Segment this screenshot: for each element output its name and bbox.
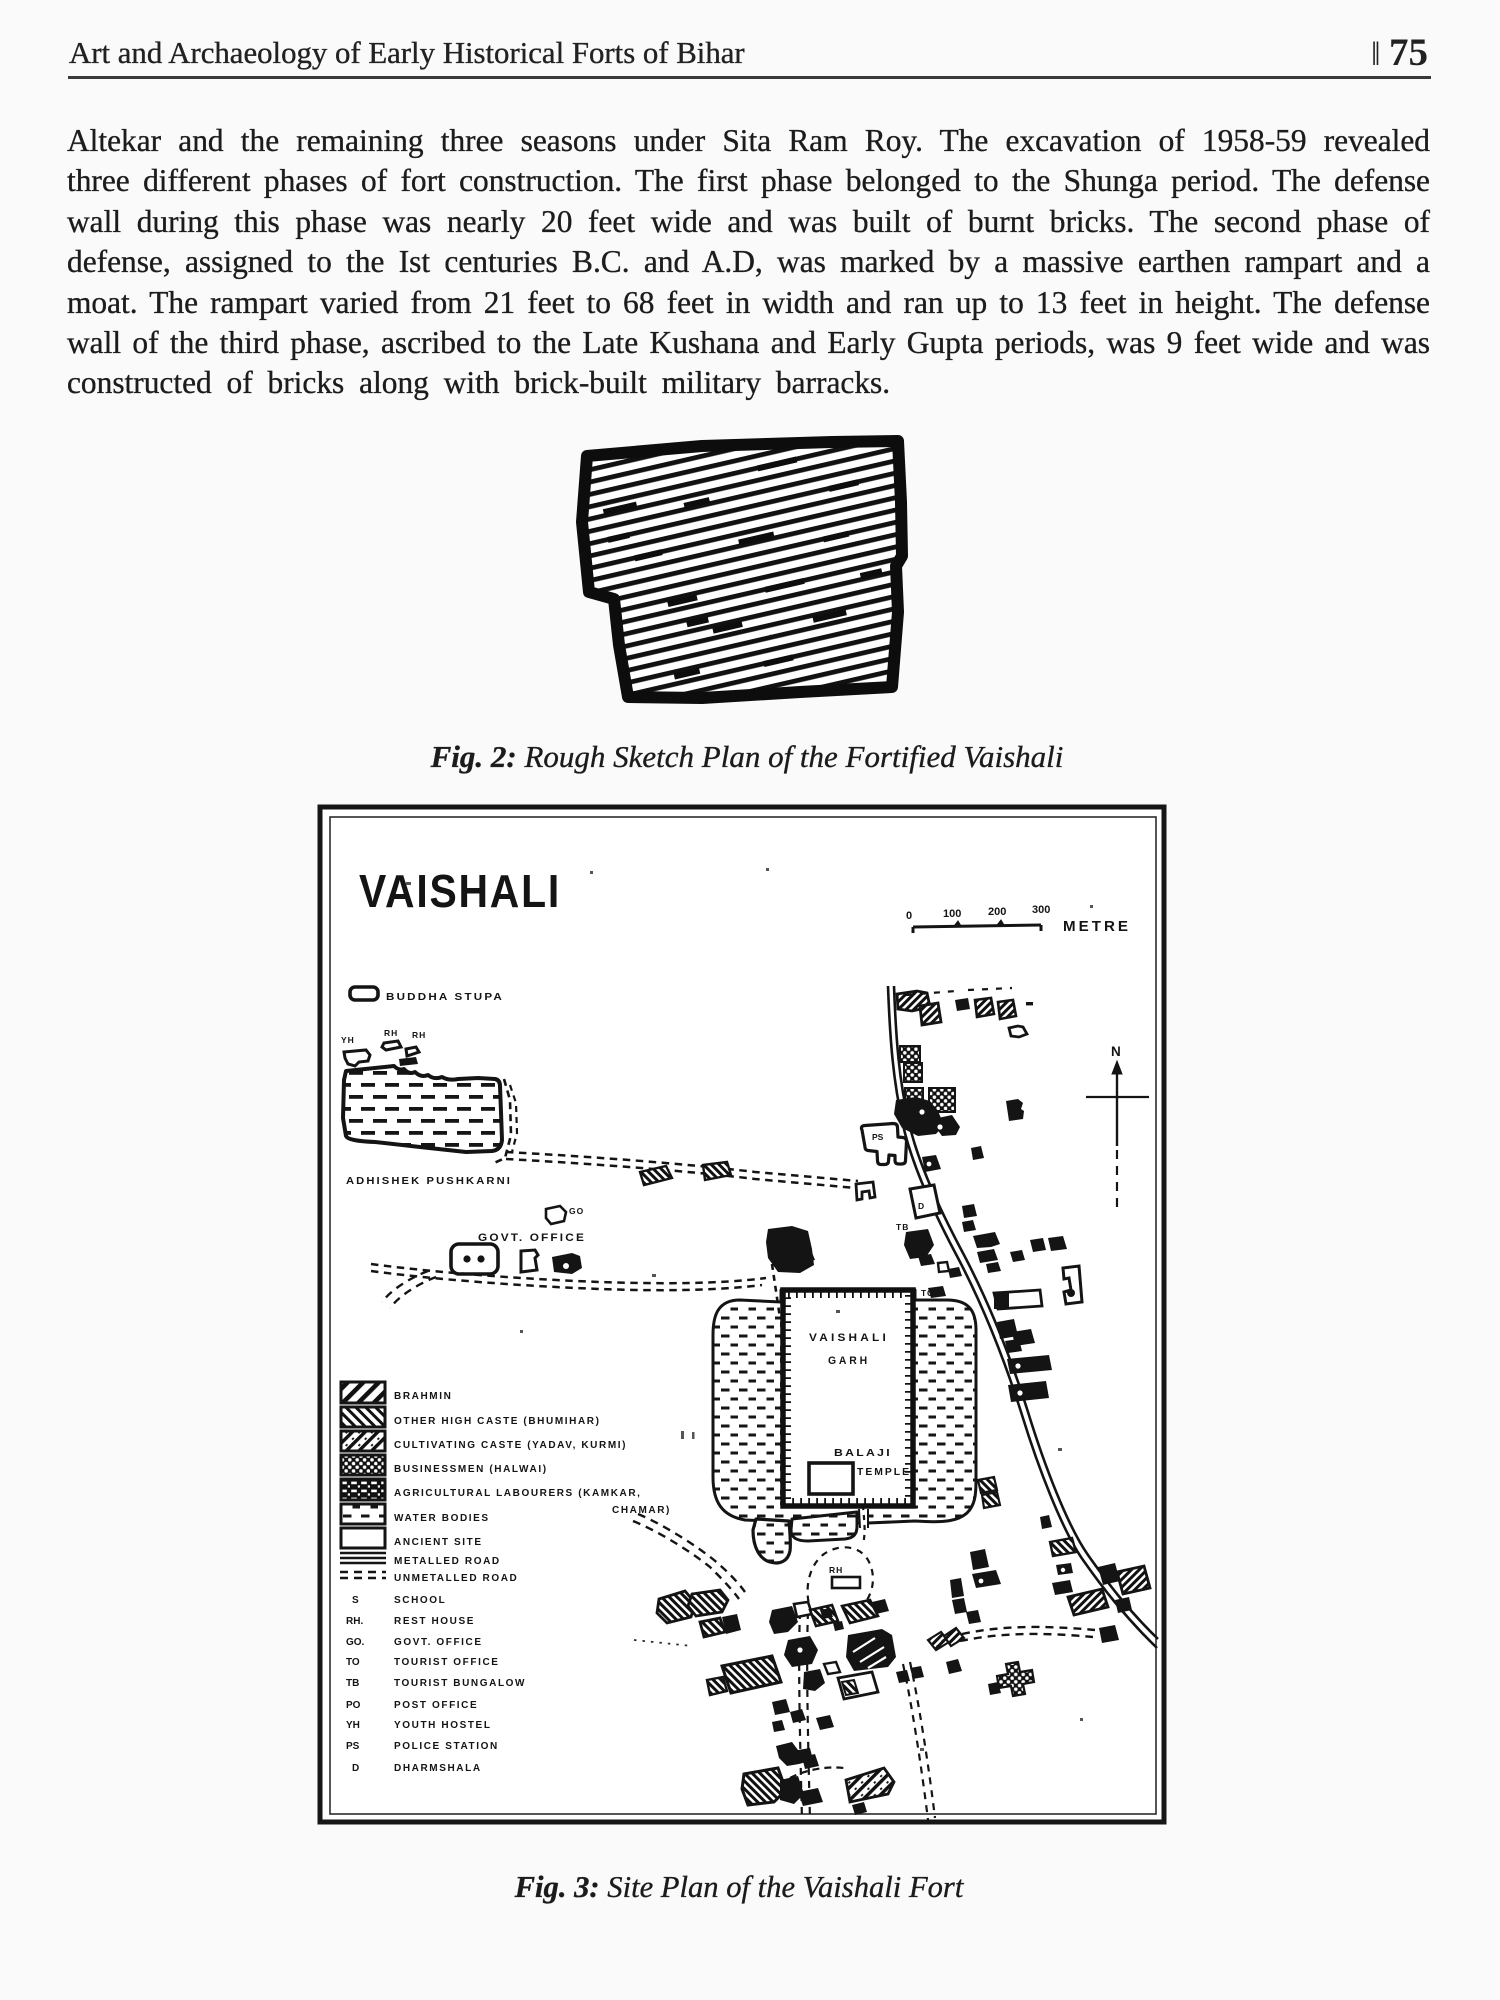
- svg-text:BALAJI: BALAJI: [834, 1447, 892, 1459]
- svg-text:POLICE STATION: POLICE STATION: [394, 1741, 499, 1752]
- svg-text:RH.: RH.: [346, 1616, 363, 1627]
- svg-text:300: 300: [1032, 904, 1050, 916]
- svg-text:AGRICULTURAL LABOURERS (KAMKAR: AGRICULTURAL LABOURERS (KAMKAR,: [394, 1488, 642, 1499]
- svg-text:GOVT. OFFICE: GOVT. OFFICE: [394, 1637, 483, 1648]
- svg-text:YH: YH: [346, 1720, 360, 1731]
- svg-text:ADHISHEK PUSHKARNI: ADHISHEK PUSHKARNI: [346, 1175, 512, 1187]
- svg-text:ANCIENT SITE: ANCIENT SITE: [394, 1537, 483, 1548]
- svg-text:PS: PS: [872, 1132, 884, 1142]
- svg-text:BUDDHA STUPA: BUDDHA STUPA: [386, 991, 504, 1003]
- svg-text:UNMETALLED ROAD: UNMETALLED ROAD: [394, 1573, 518, 1584]
- svg-text:YOUTH HOSTEL: YOUTH HOSTEL: [394, 1720, 492, 1731]
- svg-text:TB: TB: [896, 1222, 909, 1232]
- svg-text:PS: PS: [346, 1741, 360, 1752]
- svg-text:D: D: [918, 1201, 924, 1211]
- svg-text:GOVT. OFFICE: GOVT. OFFICE: [478, 1232, 586, 1244]
- svg-text:CHAMAR): CHAMAR): [612, 1505, 671, 1516]
- svg-text:BUSINESSMEN (HALWAI): BUSINESSMEN (HALWAI): [394, 1464, 548, 1475]
- svg-text:RH: RH: [829, 1565, 843, 1575]
- svg-text:CULTIVATING CASTE (YADAV, KURM: CULTIVATING CASTE (YADAV, KURMI): [394, 1440, 627, 1451]
- svg-text:TOURIST OFFICE: TOURIST OFFICE: [394, 1657, 500, 1668]
- svg-text:N: N: [1111, 1044, 1121, 1059]
- svg-text:DHARMSHALA: DHARMSHALA: [394, 1763, 482, 1774]
- svg-text:D: D: [352, 1763, 359, 1774]
- svg-text:REST HOUSE: REST HOUSE: [394, 1616, 475, 1627]
- svg-text:S: S: [352, 1595, 359, 1606]
- svg-text:TO: TO: [346, 1657, 360, 1668]
- svg-text:VAISHALI: VAISHALI: [359, 865, 561, 917]
- svg-text:TB: TB: [346, 1678, 359, 1689]
- svg-text:TOURIST BUNGALOW: TOURIST BUNGALOW: [394, 1678, 526, 1689]
- svg-text:RH: RH: [412, 1030, 426, 1040]
- svg-text:0: 0: [906, 910, 912, 922]
- svg-text:TEMPLE: TEMPLE: [857, 1466, 911, 1478]
- svg-text:VAISHALI: VAISHALI: [809, 1332, 889, 1344]
- svg-text:PO: PO: [346, 1700, 361, 1711]
- svg-text:100: 100: [943, 908, 961, 920]
- svg-text:OTHER HIGH CASTE (BHUMIHAR): OTHER HIGH CASTE (BHUMIHAR): [394, 1416, 601, 1427]
- svg-text:WATER BODIES: WATER BODIES: [394, 1513, 490, 1524]
- svg-text:GO: GO: [569, 1206, 584, 1216]
- svg-text:METRE: METRE: [1063, 918, 1131, 935]
- svg-text:GO.: GO.: [346, 1637, 365, 1648]
- svg-text:POST OFFICE: POST OFFICE: [394, 1700, 478, 1711]
- svg-text:RH: RH: [384, 1028, 398, 1038]
- svg-text:YH: YH: [341, 1035, 355, 1045]
- svg-text:GARH: GARH: [828, 1355, 870, 1367]
- svg-text:BRAHMIN: BRAHMIN: [394, 1391, 452, 1402]
- svg-text:METALLED ROAD: METALLED ROAD: [394, 1556, 501, 1567]
- svg-text:200: 200: [988, 906, 1006, 918]
- svg-text:SCHOOL: SCHOOL: [394, 1595, 446, 1606]
